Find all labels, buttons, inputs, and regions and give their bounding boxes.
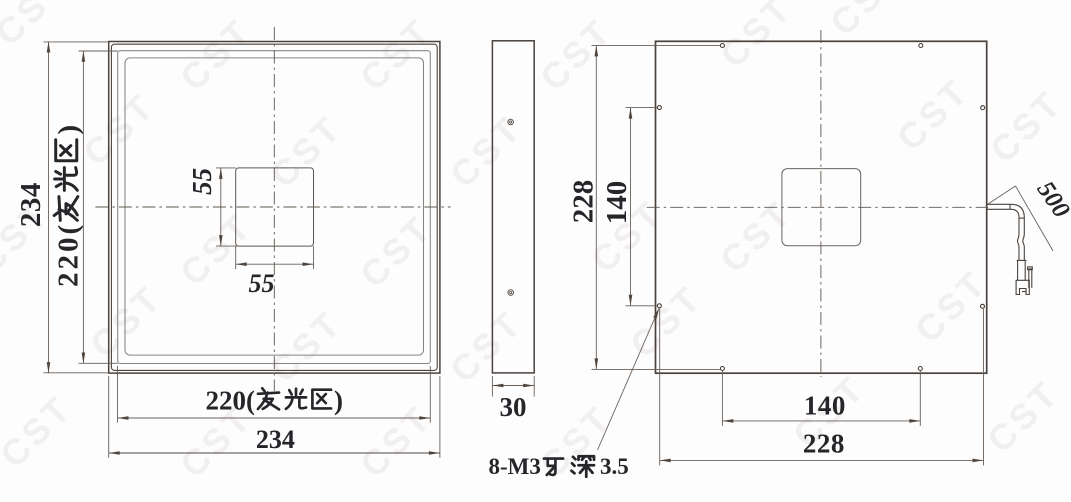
svg-text:30: 30 — [500, 392, 527, 422]
svg-text:140: 140 — [601, 181, 633, 225]
svg-text:3.5: 3.5 — [600, 454, 629, 479]
svg-text:220(: 220( — [53, 222, 85, 287]
svg-text:234: 234 — [256, 425, 295, 454]
svg-text:228: 228 — [568, 180, 600, 224]
svg-text:8-M3: 8-M3 — [489, 454, 541, 479]
svg-text:228: 228 — [803, 429, 845, 459]
svg-text:234: 234 — [15, 182, 47, 227]
svg-text:): ) — [334, 386, 343, 416]
svg-text:): ) — [53, 125, 85, 135]
svg-text:55: 55 — [249, 269, 275, 298]
svg-text:55: 55 — [187, 168, 217, 195]
svg-text:220(: 220( — [206, 386, 256, 416]
svg-text:140: 140 — [804, 391, 846, 421]
